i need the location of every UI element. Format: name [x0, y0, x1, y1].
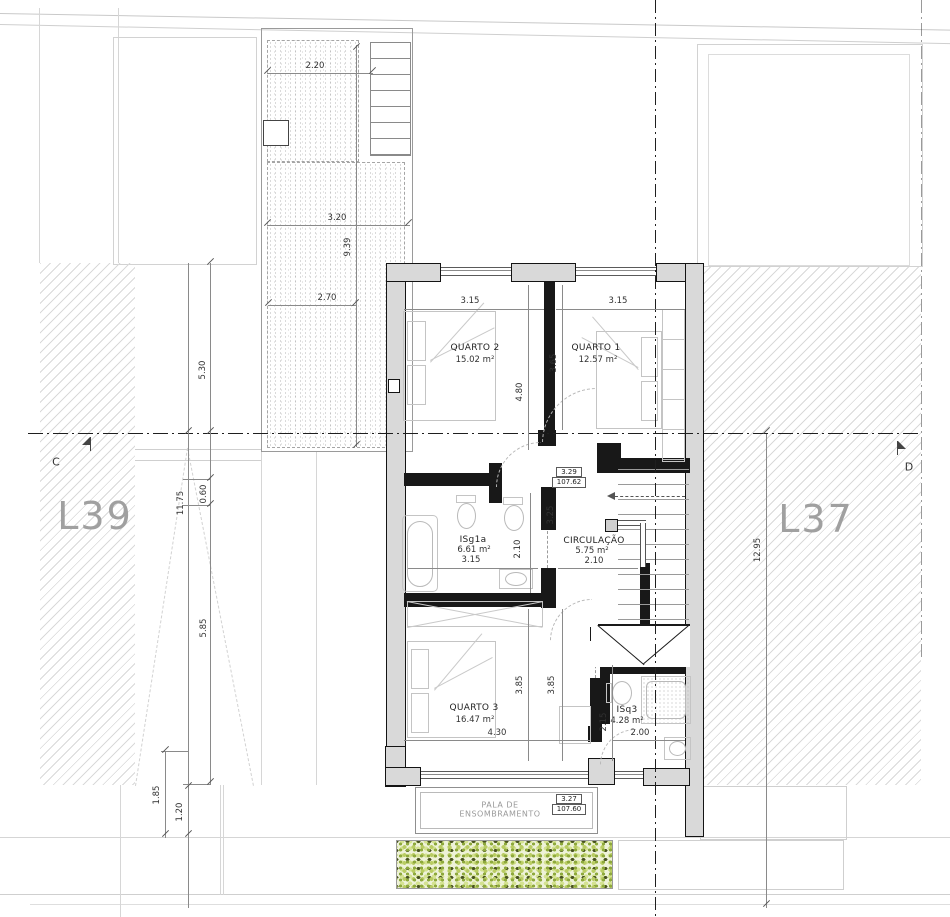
opening-spine-dashed — [547, 531, 549, 568]
bidet-tank — [503, 497, 523, 505]
site-dim-line-1295 — [766, 434, 767, 908]
patio-outline-1 — [618, 840, 844, 890]
site-boundary-line-1 — [0, 13, 950, 31]
yard-line-vertical-2 — [316, 452, 317, 785]
dim-label-q3-depth-a: 3.85 — [515, 676, 525, 695]
wall-bath-north — [404, 473, 492, 486]
dim-label-q1-width: 3.15 — [609, 296, 628, 306]
wall-south-pier-right — [643, 768, 690, 786]
hedge-planting — [396, 840, 613, 889]
garden-wall-line-1 — [135, 449, 262, 450]
axis-line-right-boundary — [921, 0, 922, 658]
bidet-bowl — [504, 505, 524, 531]
site-dim-1295: 12.95 — [753, 538, 763, 562]
dim-line-q3-width — [404, 740, 590, 741]
room-label-isg1a: ISg1a — [460, 535, 487, 545]
dim-label-q2-width: 3.15 — [461, 296, 480, 306]
stair-walk-line — [615, 496, 685, 497]
lot-l39-label: L39 — [57, 494, 133, 538]
dim-label-939: 9.39 — [343, 238, 353, 257]
door-arc-quarto1 — [542, 388, 597, 443]
section-line-cd — [28, 433, 920, 434]
street-line-vertical-2 — [220, 785, 221, 895]
room-label-quarto3: QUARTO 3 — [450, 703, 499, 713]
section-flag-d — [898, 441, 906, 449]
stair-treads — [618, 455, 689, 625]
window-south-1 — [421, 771, 588, 779]
site-line-vertical-1 — [39, 8, 40, 263]
stair-walk-arrow — [607, 492, 615, 500]
wall-southwest-corner-b — [385, 767, 421, 786]
room-label-quarto2: QUARTO 2 — [451, 343, 500, 353]
site-dim-arrow-185 — [161, 751, 189, 752]
axis-line-lot-division — [655, 0, 656, 917]
dim-line-q2-width — [404, 309, 544, 310]
dim-label-isq3-depth: 2.15 — [599, 713, 609, 732]
dim-line-320 — [267, 225, 410, 226]
site-dim-line-a — [210, 263, 211, 785]
dim-label-220: 2.20 — [306, 61, 325, 71]
street-line-vertical-1 — [120, 785, 121, 917]
room-area-isq3: 4.28 m² — [610, 716, 643, 726]
level-upper-elevation: 107.62 — [552, 477, 586, 488]
dim-label-q1-depth: 3.65 — [549, 354, 559, 373]
door-arc-quarto3 — [550, 599, 592, 641]
pala-label-line1: PALA DE — [481, 801, 518, 810]
yard-line-vertical-1 — [261, 452, 262, 785]
dim-label-q2-depth: 4.80 — [515, 383, 525, 402]
window-north-2 — [576, 267, 656, 276]
sink-isg1a-basin — [505, 572, 527, 586]
site-dim-line-185 — [165, 752, 166, 838]
dim-line-circ-width — [558, 568, 638, 569]
dim-line-q1-depth — [562, 285, 563, 430]
dim-line-270 — [268, 305, 357, 306]
window-north-1 — [441, 267, 511, 276]
dim-line-q3-depth-a — [528, 609, 529, 761]
section-label-d: D — [905, 461, 913, 474]
room-area-quarto1: 12.57 m² — [579, 355, 618, 365]
section-flag-d-pole — [897, 441, 898, 455]
pillow-quarto2-a — [407, 321, 426, 361]
shower-isq3-tray — [646, 681, 686, 719]
dim-line-bath-depth — [530, 493, 531, 593]
desk-quarto3 — [559, 706, 591, 744]
window-south-2 — [615, 771, 643, 779]
section-label-c: C — [52, 456, 60, 469]
toilet-tank-1 — [456, 495, 476, 503]
bathtub-inner — [407, 521, 433, 587]
dim-line-q1-width — [556, 309, 685, 310]
toilet-bowl-1 — [457, 503, 476, 529]
window-west-square — [388, 379, 400, 393]
pillow-quarto3-a — [411, 649, 429, 689]
dim-line-q3-depth-b — [562, 609, 563, 761]
room-area-circulacao: 5.75 m² — [575, 546, 608, 556]
door-arc-isg1a — [496, 442, 541, 487]
dim-line-939 — [356, 45, 357, 447]
site-dim-530: 5.30 — [198, 361, 208, 380]
room-area-quarto2: 15.02 m² — [456, 355, 495, 365]
stair-handrail-vertical — [640, 523, 646, 567]
section-flag-c-pole — [90, 437, 91, 451]
courtyard-window-box — [263, 120, 289, 146]
dim-label-bath-width: 3.15 — [462, 555, 481, 565]
dim-label-isq3-width: 2.00 — [631, 728, 650, 738]
room-label-isq3: ISq3 — [616, 705, 637, 715]
dim-label-circ-width: 2.10 — [585, 556, 604, 566]
sight-line-2 — [187, 448, 254, 786]
toilet-bowl-3 — [612, 681, 632, 705]
dim-line-bath-width — [408, 568, 538, 569]
exterior-stair — [370, 42, 411, 156]
site-dim-585: 5.85 — [199, 619, 209, 638]
section-flag-c — [82, 437, 90, 445]
site-dim-060: 0.60 — [199, 485, 209, 504]
dim-label-320: 3.20 — [328, 213, 347, 223]
pillow-quarto2-b — [407, 365, 426, 405]
room-label-quarto1: QUARTO 1 — [572, 343, 621, 353]
neighbor-outline-left — [113, 37, 257, 265]
stair-cut-top-line — [598, 624, 690, 626]
room-area-quarto3: 16.47 m² — [456, 715, 495, 725]
lot-l37-label: L37 — [778, 497, 854, 541]
dim-label-bath-depth: 2.10 — [513, 540, 523, 559]
patio-outline-2 — [700, 786, 847, 840]
street-line-vertical-3 — [223, 785, 224, 895]
wall-north-pier-left — [386, 263, 441, 282]
dim-label-hall: 3.25 — [546, 506, 556, 525]
stair-newel-post — [605, 519, 618, 532]
sink-isq3-basin — [669, 741, 686, 756]
floor-plan-canvas: L39 L37 2.20 3.20 9.39 2.70 — [0, 0, 950, 917]
room-label-circulacao: CIRCULAÇÃO — [563, 536, 624, 546]
dim-label-q3-depth-b: 3.85 — [547, 676, 557, 695]
dim-line-220 — [267, 73, 373, 74]
pillow-quarto3-b — [411, 693, 429, 733]
site-dim-120: 1.20 — [175, 803, 185, 822]
street-line-3 — [30, 904, 950, 905]
street-line-2 — [0, 894, 950, 895]
garden-wall-line-2 — [135, 460, 262, 461]
dim-label-q3-width: 4.30 — [488, 728, 507, 738]
neighbor-outline-right-inner — [708, 54, 910, 266]
wall-north-pier-mid — [511, 263, 576, 282]
dim-line-isq3-width — [612, 740, 685, 741]
pala-label-line2: ENSOMBRAMENTO — [459, 810, 540, 819]
dim-line-isq3-depth — [612, 665, 613, 761]
wardrobe-quarto1 — [662, 309, 685, 462]
site-dim-185: 1.85 — [152, 786, 162, 805]
dim-line-q2-depth — [528, 285, 529, 450]
dim-label-270: 2.70 — [318, 293, 337, 303]
room-area-isg1a: 6.61 m² — [457, 545, 490, 555]
level-upper-height: 3.29 — [556, 467, 582, 477]
site-dim-1175: 11.75 — [176, 491, 186, 515]
